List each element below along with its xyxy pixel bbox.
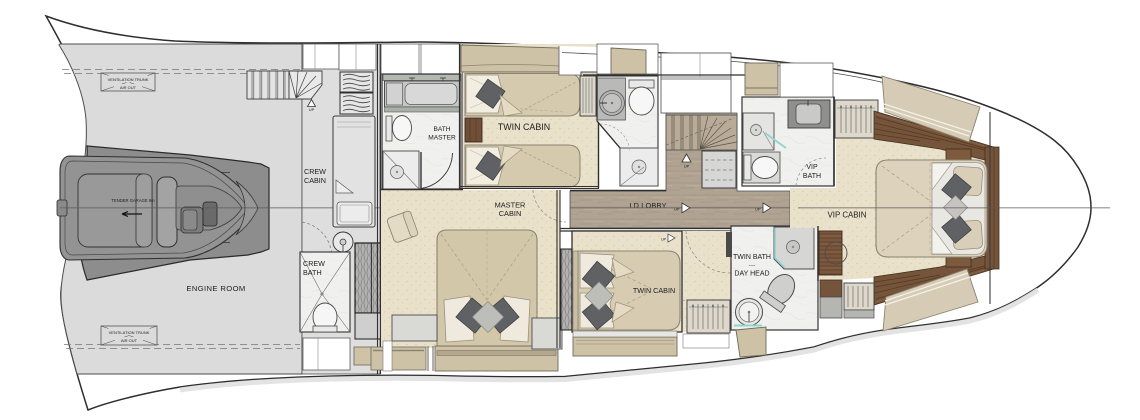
- svg-text:AIR OUT: AIR OUT: [120, 85, 137, 90]
- svg-text:VENTILATION TRUNK: VENTILATION TRUNK: [109, 330, 150, 335]
- svg-text:ENGINE ROOM: ENGINE ROOM: [186, 284, 245, 293]
- svg-text:UP: UP: [684, 164, 690, 169]
- svg-text:DAY HEAD: DAY HEAD: [734, 271, 769, 278]
- svg-text:CREW: CREW: [303, 259, 325, 268]
- svg-text:UP: UP: [755, 207, 761, 212]
- svg-text:BATH: BATH: [433, 126, 450, 133]
- svg-text:UP: UP: [661, 238, 667, 242]
- svg-text:VIP: VIP: [806, 164, 818, 171]
- svg-text:CREW: CREW: [304, 167, 326, 176]
- svg-text:MASTER: MASTER: [428, 135, 456, 142]
- svg-text:CABIN: CABIN: [304, 176, 326, 185]
- svg-text:VENTILATION TRUNK: VENTILATION TRUNK: [108, 77, 149, 82]
- svg-text:BATH: BATH: [803, 173, 821, 180]
- svg-text:TWIN BATH: TWIN BATH: [733, 254, 771, 261]
- svg-text:TENDER GARAGE 9m: TENDER GARAGE 9m: [111, 198, 155, 203]
- svg-text:TWIN CABIN: TWIN CABIN: [498, 122, 550, 132]
- svg-text:UP: UP: [674, 207, 680, 212]
- svg-text:----: ----: [749, 263, 756, 269]
- svg-text:UP: UP: [309, 107, 315, 112]
- svg-text:CABIN: CABIN: [499, 209, 522, 218]
- svg-text:TWIN CABIN: TWIN CABIN: [633, 286, 675, 295]
- svg-text:BATH: BATH: [303, 268, 322, 277]
- svg-text:VIP CABIN: VIP CABIN: [828, 211, 867, 220]
- svg-text:AIR OUT: AIR OUT: [121, 338, 138, 343]
- svg-text:LD LOBBY: LD LOBBY: [629, 201, 666, 210]
